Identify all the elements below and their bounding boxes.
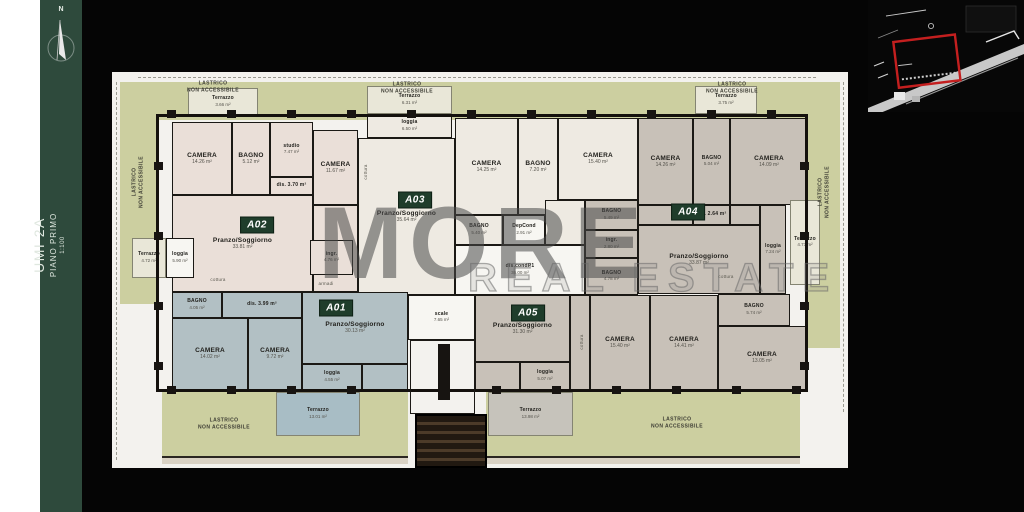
- room-area: 7.47 m²: [284, 150, 299, 155]
- lastrico-label-top-right: LASTRICONON ACCESSIBILE: [706, 82, 758, 95]
- pilaster: [552, 386, 561, 394]
- room-a02-dis: dis. 3.70 m²: [270, 177, 313, 195]
- room-label: CAMERA: [605, 336, 635, 343]
- lastrico-label-top-center: LASTRICONON ACCESSIBILE: [381, 82, 433, 95]
- room-label: CAMERA: [321, 161, 351, 168]
- room-label: CAMERA: [651, 155, 681, 162]
- pilaster: [492, 386, 501, 394]
- cottura-a05: cottura: [579, 334, 585, 349]
- room-label: dis. 3.99 m²: [247, 302, 277, 308]
- lastrico-label-left-vertical: LASTRICONON ACCESSIBILE: [132, 156, 145, 208]
- pilaster: [347, 110, 356, 118]
- north-arrow: N: [40, 6, 82, 81]
- watermark-secondary: REAL ESTATE: [468, 258, 838, 298]
- room-area: 31.30 m²: [513, 330, 533, 336]
- room-area: 14.09 m²: [759, 163, 779, 169]
- room-area: 4.55 m²: [324, 378, 339, 383]
- room-label: BAGNO: [238, 152, 263, 159]
- room-area: 3.75 m²: [718, 101, 733, 106]
- north-label: N: [40, 6, 82, 13]
- stair-core: [438, 344, 450, 400]
- plan-title: UMI 2A: [31, 175, 47, 315]
- room-area: 7.24 m²: [765, 250, 780, 255]
- plan-scale: 1:100: [60, 175, 66, 315]
- plan-subtitle: PIANO PRIMO: [49, 175, 58, 315]
- room-area: 7.20 m²: [530, 168, 547, 174]
- dimension-line-left: [116, 82, 117, 460]
- room-label: CAMERA: [747, 351, 777, 358]
- room-a05-loggia: loggia5.07 m²: [520, 362, 570, 390]
- room-area: 13.98 m²: [522, 415, 540, 420]
- room-area: 14.41 m²: [674, 344, 694, 350]
- cottura-a03: cottura: [363, 164, 369, 179]
- terrazzo-a05: Terrazzo13.98 m²: [488, 392, 573, 436]
- lastrico-label-top-left: LASTRICONON ACCESSIBILE: [187, 81, 239, 94]
- room-label: CAMERA: [472, 160, 502, 167]
- lastrico-label-bottom-right: LASTRICONON ACCESSIBILE: [651, 417, 703, 430]
- pilaster: [347, 386, 356, 394]
- dimension-line-right: [843, 82, 844, 412]
- pilaster: [287, 110, 296, 118]
- pilaster: [792, 386, 801, 394]
- pilaster: [154, 232, 163, 240]
- pilaster: [800, 162, 809, 170]
- room-area: 5.74 m²: [746, 311, 761, 316]
- cottura-a02: cottura: [210, 277, 225, 283]
- pilaster: [587, 110, 596, 118]
- room-area: 13.01 m²: [309, 415, 327, 420]
- room-area: 30.13 m²: [345, 329, 365, 335]
- pilaster: [167, 386, 176, 394]
- room-a01-camera-2: CAMERA9.72 m²: [248, 318, 302, 390]
- compass-icon: [43, 14, 79, 76]
- room-label: CAMERA: [583, 152, 613, 159]
- pilaster: [227, 110, 236, 118]
- room-area: 6.50 m²: [402, 127, 417, 132]
- room-a05-camera-2: CAMERA14.41 m²: [650, 295, 718, 390]
- terrazzo-a02-left: Terrazzo4.72 m²: [132, 238, 166, 278]
- pilaster: [767, 110, 776, 118]
- room-area: 14.26 m²: [192, 160, 212, 166]
- room-a01-dis: dis. 3.99 m²: [222, 292, 302, 318]
- room-area: 11.67 m²: [326, 169, 345, 175]
- room-a04-camera-2: CAMERA14.09 m²: [730, 118, 808, 205]
- room-a05-camera-1: CAMERA15.40 m²: [590, 295, 650, 390]
- room-scale: scale7.65 m²: [408, 295, 475, 340]
- pilaster: [467, 110, 476, 118]
- room-area: 4.72 m²: [141, 259, 156, 264]
- pilaster: [647, 110, 656, 118]
- lastrico-label-right-vertical: LASTRICONON ACCESSIBILE: [818, 166, 831, 218]
- room-label: dis. 3.70 m²: [277, 183, 307, 189]
- room-label: CAMERA: [669, 336, 699, 343]
- room-area: 4.05 m²: [189, 306, 204, 311]
- dimension-line-top: [138, 77, 816, 78]
- room-label: BAGNO: [525, 160, 550, 167]
- room-area: 4.73 m²: [797, 243, 812, 248]
- room-label: Pranzo/Soggiorno: [213, 237, 272, 244]
- room-area: 13.05 m²: [752, 359, 772, 365]
- room-area: 15.40 m²: [588, 160, 608, 166]
- room-label: CAMERA: [754, 155, 784, 162]
- pilaster: [612, 386, 621, 394]
- pilaster: [154, 162, 163, 170]
- room-label: Pranzo/Soggiorno: [325, 321, 384, 328]
- pilaster: [154, 302, 163, 310]
- a04-hall-2: [730, 205, 760, 225]
- room-area: 14.25 m²: [477, 168, 497, 174]
- page: N UMI 2A PIANO PRIMO 1:100 Terrazzo3.66 …: [0, 0, 1024, 512]
- apartment-badge-a04: A04: [671, 204, 705, 221]
- room-label: CAMERA: [187, 152, 217, 159]
- pilaster: [800, 302, 809, 310]
- room-a02-bagno: BAGNO5.12 m²: [232, 122, 270, 195]
- pilaster: [800, 362, 809, 370]
- lastrico-label-bottom-left: LASTRICONON ACCESSIBILE: [198, 418, 250, 431]
- room-a01-camera-1: CAMERA14.02 m²: [172, 318, 248, 390]
- room-a02-camera-1: CAMERA14.26 m²: [172, 122, 232, 195]
- plan-title-block: UMI 2A PIANO PRIMO 1:100: [31, 175, 91, 315]
- pilaster: [672, 386, 681, 394]
- pilaster: [800, 232, 809, 240]
- room-a04-bagno-1: BAGNO5.04 m²: [693, 118, 730, 205]
- pilaster: [707, 110, 716, 118]
- apartment-badge-a01: A01: [319, 300, 353, 317]
- a01-hall: [362, 364, 408, 390]
- site-plan-inset: [868, 0, 1024, 112]
- pilaster: [167, 110, 176, 118]
- pilaster: [527, 110, 536, 118]
- room-a05-camera-3: CAMERA13.05 m²: [718, 326, 806, 390]
- room-a01-pranzo: Pranzo/Soggiorno30.13 m²: [302, 292, 408, 364]
- room-area: 14.26 m²: [656, 163, 676, 169]
- pilaster: [287, 386, 296, 394]
- pilaster: [407, 110, 416, 118]
- room-label: Pranzo/Soggiorno: [493, 322, 552, 329]
- pilaster: [154, 362, 163, 370]
- room-area: 5.90 m²: [172, 259, 187, 264]
- room-area: 14.02 m²: [200, 355, 220, 361]
- room-a02-studio: studio7.47 m²: [270, 122, 313, 177]
- apartment-badge-a05: A05: [511, 305, 545, 322]
- room-a01-bagno: BAGNO4.05 m²: [172, 292, 222, 318]
- pilaster: [227, 386, 236, 394]
- room-area: 7.65 m²: [434, 318, 449, 323]
- room-a02-loggia: loggia5.90 m²: [166, 238, 194, 278]
- apartment-badge-a02: A02: [240, 217, 274, 234]
- room-area: 5.04 m²: [704, 162, 719, 167]
- stairs-external: [415, 414, 487, 468]
- room-area: 3.66 m²: [215, 103, 230, 108]
- room-area: 5.07 m²: [537, 377, 552, 382]
- room-area: 33.81 m²: [233, 245, 253, 251]
- parapet-right: [486, 456, 800, 464]
- room-label: CAMERA: [195, 347, 225, 354]
- room-area: 15.40 m²: [610, 344, 630, 350]
- sidebar: N UMI 2A PIANO PRIMO 1:100: [40, 0, 82, 512]
- room-label: CAMERA: [260, 347, 290, 354]
- room-area: 9.72 m²: [267, 355, 284, 361]
- room-area: 5.12 m²: [243, 160, 260, 166]
- pilaster: [732, 386, 741, 394]
- terrazzo-a01: Terrazzo13.01 m²: [276, 392, 360, 436]
- room-area: 6.31 m²: [402, 101, 417, 106]
- parapet-left: [162, 456, 408, 464]
